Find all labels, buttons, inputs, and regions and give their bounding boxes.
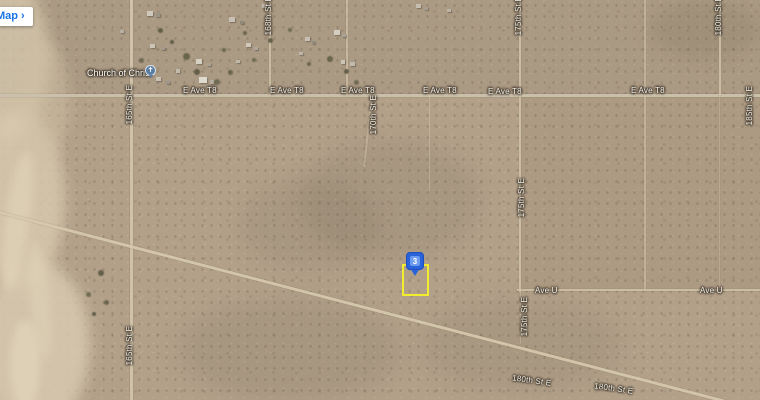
road-label-e-ave-t8: E Ave T8: [183, 87, 217, 95]
building: [207, 63, 211, 66]
building: [334, 30, 340, 35]
building: [424, 7, 428, 10]
road-label-e-ave-t8: E Ave T8: [423, 87, 457, 95]
terrain-decorations: [0, 0, 760, 400]
building: [299, 52, 303, 55]
road-label-175th-st: 175th St E: [515, 0, 523, 35]
building: [254, 47, 258, 50]
shrub: [222, 48, 226, 52]
building: [416, 4, 421, 8]
church-icon-tail: [149, 75, 153, 78]
pin-body: 3: [406, 252, 424, 270]
shrub: [252, 58, 256, 62]
shrub: [307, 62, 311, 66]
road-label-165th-st: 165th St E: [126, 85, 134, 124]
building: [312, 41, 315, 44]
building: [156, 13, 160, 17]
road-label-180th-st: 180th St E: [715, 0, 723, 35]
shrub: [139, 58, 144, 63]
shrub: [92, 312, 96, 316]
satellite-map[interactable]: E Ave T8 E Ave T8 E Ave T8 E Ave T8 E Av…: [0, 0, 760, 400]
road-label-165th-st: 165th St E: [126, 326, 134, 365]
shrub: [228, 70, 233, 75]
building: [305, 37, 310, 41]
shrub: [194, 69, 200, 75]
shrub: [243, 31, 247, 35]
shrub: [170, 40, 174, 44]
shrub: [98, 270, 104, 276]
building: [150, 44, 155, 48]
road-label-185th-st: 185th St E: [746, 86, 754, 125]
building: [246, 43, 251, 47]
shrub: [288, 28, 292, 32]
shrub: [104, 300, 109, 305]
road-label-e-ave-t8: E Ave T8: [631, 87, 665, 95]
road-label-e-ave-t8: E Ave T8: [341, 87, 375, 95]
building: [156, 77, 161, 81]
shrub: [86, 292, 91, 297]
road-label-168th-st: 168th St E: [265, 0, 273, 35]
building: [236, 60, 240, 63]
shrub: [158, 28, 163, 33]
road-label-170th-st: 170th St E: [370, 95, 378, 134]
pin-number: 3: [410, 256, 420, 266]
building: [341, 60, 345, 64]
road-label-e-ave-t8: E Ave T8: [488, 88, 522, 96]
building: [342, 34, 346, 37]
building: [176, 69, 180, 73]
road-label-175th-st: 175th St E: [518, 178, 526, 217]
building: [447, 9, 451, 12]
road-label-ave-u: Ave U: [700, 287, 723, 295]
building: [350, 62, 355, 66]
shrub: [268, 38, 273, 43]
shrub: [327, 56, 333, 62]
road-label-ave-u: Ave U: [535, 287, 558, 295]
building: [166, 81, 170, 84]
place-of-worship-icon[interactable]: ✝: [145, 65, 156, 76]
building: [161, 47, 165, 50]
building: [199, 77, 207, 83]
map-view-button[interactable]: Map ›: [0, 7, 33, 26]
shrub: [354, 80, 359, 85]
shrub: [183, 53, 190, 60]
road-label-e-ave-t8: E Ave T8: [270, 87, 304, 95]
building: [147, 11, 153, 16]
building: [229, 17, 235, 22]
map-pin-3[interactable]: 3: [406, 252, 424, 270]
shrub: [214, 79, 220, 85]
shrub: [344, 69, 349, 74]
church-of-christ-label: Church of Christ: [87, 68, 152, 78]
building: [196, 59, 202, 64]
building: [240, 21, 244, 24]
road-label-175th-st: 175th St E: [521, 297, 529, 336]
building: [120, 30, 124, 33]
